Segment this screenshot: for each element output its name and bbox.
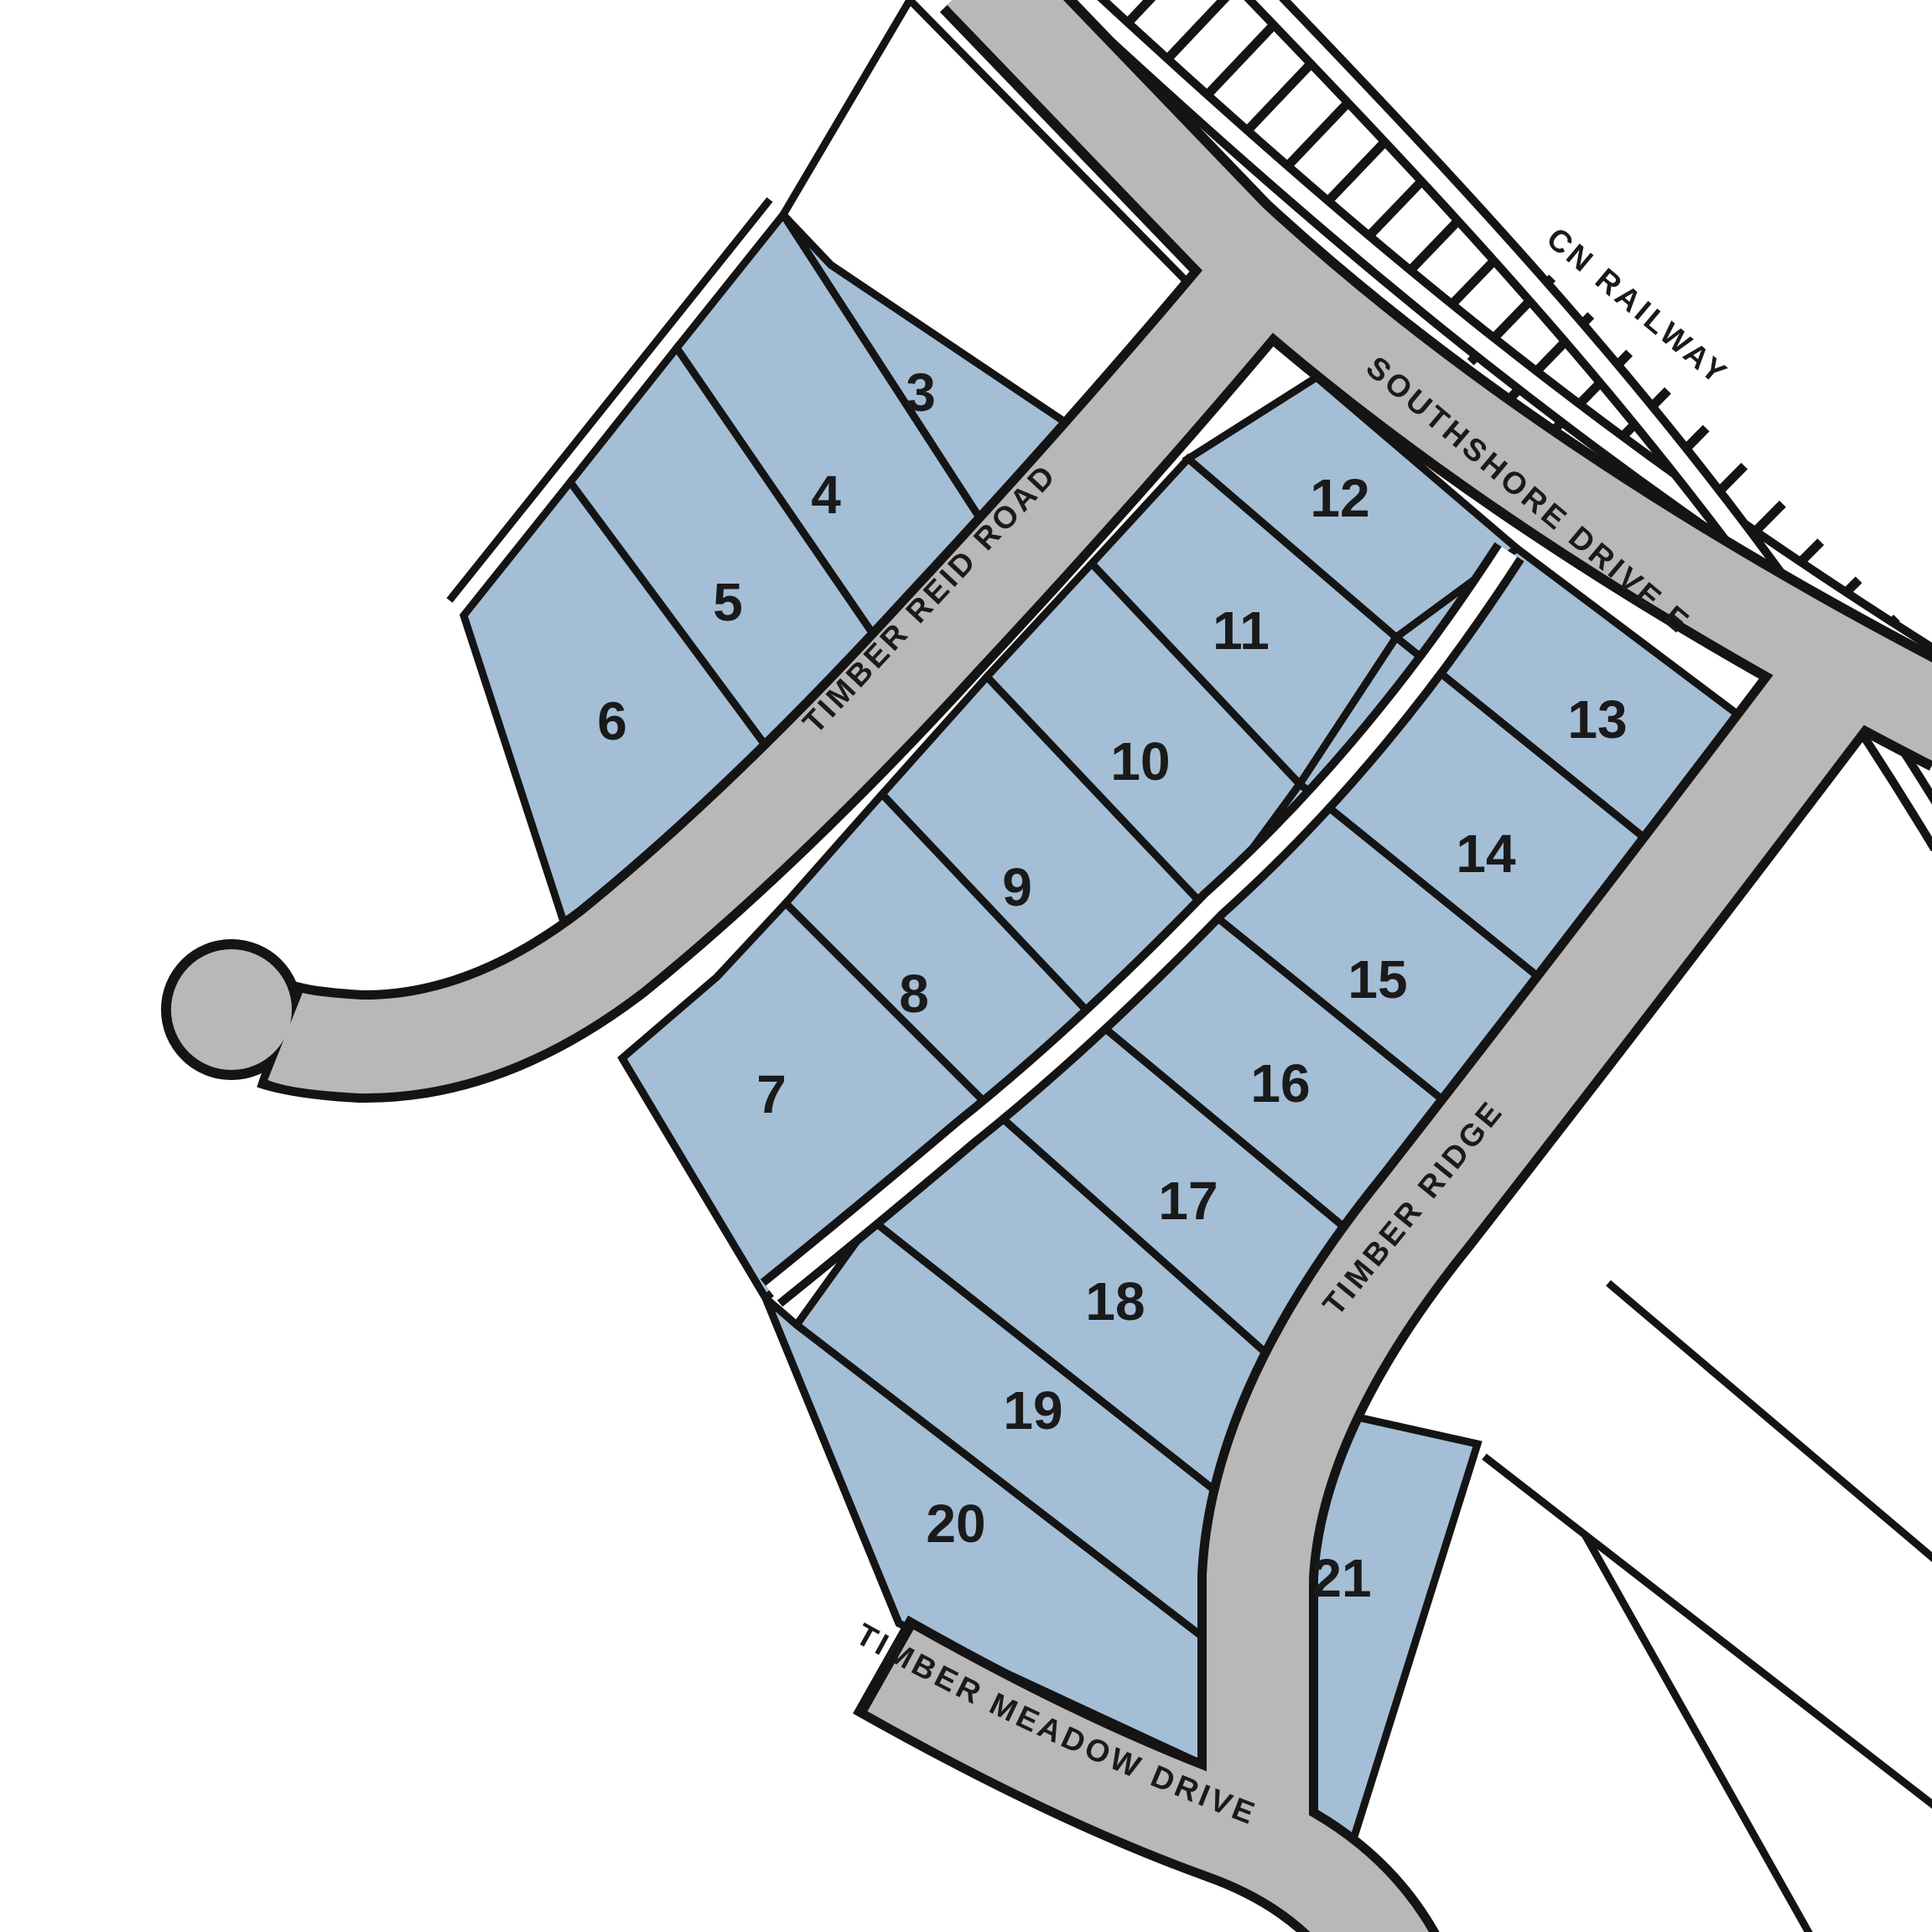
lot-label-16: 16: [1250, 1053, 1310, 1114]
lot-label-20: 20: [926, 1493, 985, 1554]
lot-label-18: 18: [1085, 1271, 1145, 1332]
lot-label-19: 19: [1003, 1380, 1062, 1441]
lot-label-6: 6: [597, 691, 627, 751]
unshaded-parcel-lines-southeast: [1484, 1283, 1932, 1932]
parcel-boundary-line: [1608, 1283, 1932, 1561]
lot-label-10: 10: [1110, 731, 1170, 792]
lot-label-5: 5: [713, 572, 743, 632]
lot-label-8: 8: [899, 963, 929, 1024]
cul-de-sac-surface: [171, 949, 292, 1070]
parcel-boundary-line: [1585, 1535, 1811, 1932]
lot-label-15: 15: [1348, 949, 1407, 1010]
lot-label-12: 12: [1310, 468, 1369, 528]
lot-label-13: 13: [1567, 689, 1627, 750]
lot-label-14: 14: [1456, 823, 1516, 884]
lot-label-7: 7: [756, 1064, 787, 1124]
lot-label-17: 17: [1158, 1171, 1218, 1231]
lot-label-11: 11: [1213, 600, 1270, 661]
lot-label-3: 3: [906, 362, 936, 423]
plat-map: CN RAILWAY SOUTHSHORE DRIVE E TIMBER REI…: [0, 0, 1932, 1932]
lot-label-9: 9: [1002, 857, 1032, 917]
lot-label-4: 4: [811, 465, 841, 525]
lot-map-canvas: CN RAILWAY SOUTHSHORE DRIVE E TIMBER REI…: [0, 0, 1932, 1932]
lot-label-21: 21: [1311, 1548, 1371, 1608]
